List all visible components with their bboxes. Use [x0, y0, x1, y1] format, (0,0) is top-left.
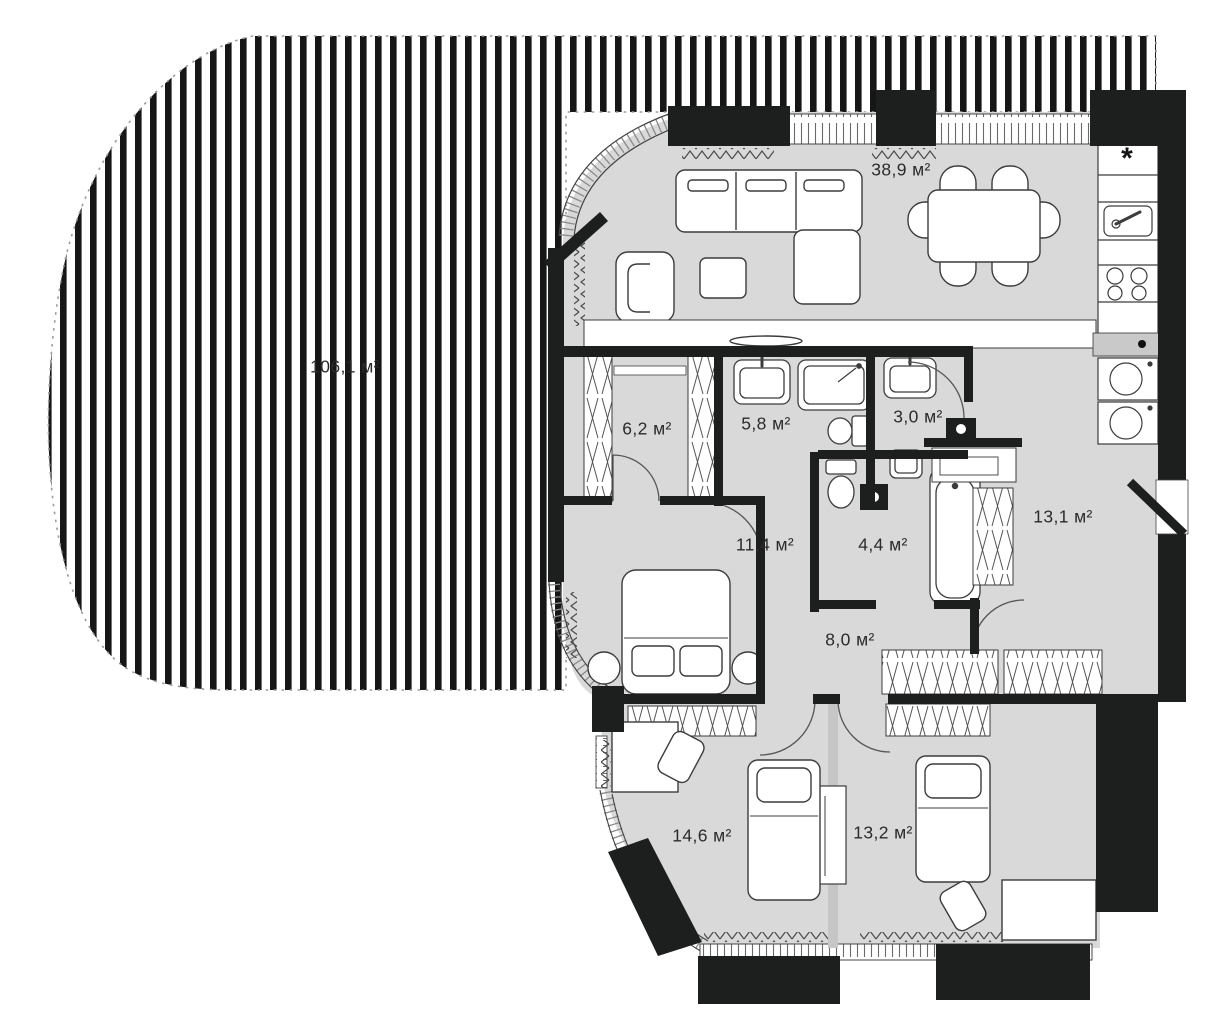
wall-right-upper: [1158, 90, 1186, 480]
room-label-bedroom-1: 11,4 м²: [736, 535, 794, 556]
wall: [964, 346, 973, 402]
wardrobe-icon: [584, 356, 612, 502]
wall-living-divider: [563, 346, 973, 357]
wall: [810, 600, 876, 609]
wall: [874, 450, 968, 459]
radiator-bedroom-2: [601, 740, 611, 788]
wall-pier-top-2: [876, 90, 936, 146]
wardrobe-icon: [882, 650, 998, 694]
floor-plan-drawing: [0, 0, 1208, 1031]
room-label-bathroom-2: 4,4 м²: [858, 535, 907, 556]
toilet-icon: [828, 416, 868, 446]
room-label-living-kitchen: 38,9 м²: [871, 160, 931, 181]
wall: [563, 496, 612, 505]
room-label-bedroom-3: 13,2 м²: [853, 823, 913, 844]
wall-pier-top-1: [668, 106, 790, 146]
wall: [866, 346, 875, 504]
armchair-icon: [616, 252, 674, 322]
wardrobe-icon: [886, 704, 990, 736]
nightstand-icon: [588, 652, 620, 684]
wardrobe-icon: [973, 488, 1013, 585]
room-label-hallway: 13,1 м²: [1033, 507, 1093, 528]
wall-wing-top-3: [888, 694, 1102, 704]
room-label-wc: 3,0 м²: [893, 407, 942, 428]
wall-wing-right: [1096, 694, 1158, 912]
shower-icon: [798, 360, 870, 410]
radiator-bottom-2: [860, 932, 1012, 942]
window-top-1: [788, 114, 878, 144]
wall: [660, 496, 762, 505]
room-label-terrace: 106,1 м²: [310, 357, 380, 378]
wall: [756, 496, 765, 704]
wall: [818, 450, 870, 459]
wall-left: [548, 248, 564, 582]
wall: [924, 438, 1022, 447]
dryer-icon: [1098, 402, 1158, 444]
wall: [714, 346, 723, 506]
glass-door: [818, 786, 846, 884]
kitchen-sink-icon: [1104, 206, 1152, 236]
room-label-bathroom-1: 5,8 м²: [741, 414, 790, 435]
room-label-corridor: 8,0 м²: [825, 630, 874, 651]
single-bed-icon: [748, 760, 820, 900]
wall-pier-bottom-2: [936, 944, 1090, 1000]
window-top-2: [934, 114, 1092, 144]
radiator-bottom-1: [704, 932, 838, 942]
single-bed-icon: [916, 756, 990, 882]
toilet-icon: [826, 460, 856, 508]
kitchen: [1093, 138, 1160, 444]
wall: [970, 598, 979, 654]
fridge-asterisk-symbol: *: [1121, 144, 1133, 174]
wall: [810, 452, 819, 612]
wall-wing-corner: [592, 686, 624, 732]
wardrobe-icon: [1004, 650, 1102, 694]
room-label-closet: 6,2 м²: [622, 419, 671, 440]
wall-dot: [956, 424, 966, 434]
radiator-living-1: [682, 148, 774, 159]
radiator-master: [566, 592, 577, 658]
floor-plan: 106,1 м² 38,9 м² 6,2 м² 5,8 м² 3,0 м² 13…: [0, 0, 1208, 1031]
sink-icon: [884, 354, 936, 398]
radiator-living-2: [872, 148, 936, 159]
wall-right-lower: [1158, 534, 1186, 702]
room-label-bedroom-2: 14,6 м²: [672, 826, 732, 847]
washer-icon: [1098, 358, 1158, 400]
sink-icon: [734, 356, 790, 404]
shelf: [614, 366, 686, 375]
wardrobe-icon: [688, 356, 716, 502]
coffee-table-icon: [700, 258, 746, 298]
wall-wing-top-2: [813, 694, 840, 704]
desk-icon: [937, 878, 1096, 940]
counter-end: [1093, 333, 1160, 356]
double-bed-icon: [622, 570, 730, 694]
tv-console: [584, 320, 1096, 348]
wall-pier-bottom-1: [698, 956, 840, 1004]
